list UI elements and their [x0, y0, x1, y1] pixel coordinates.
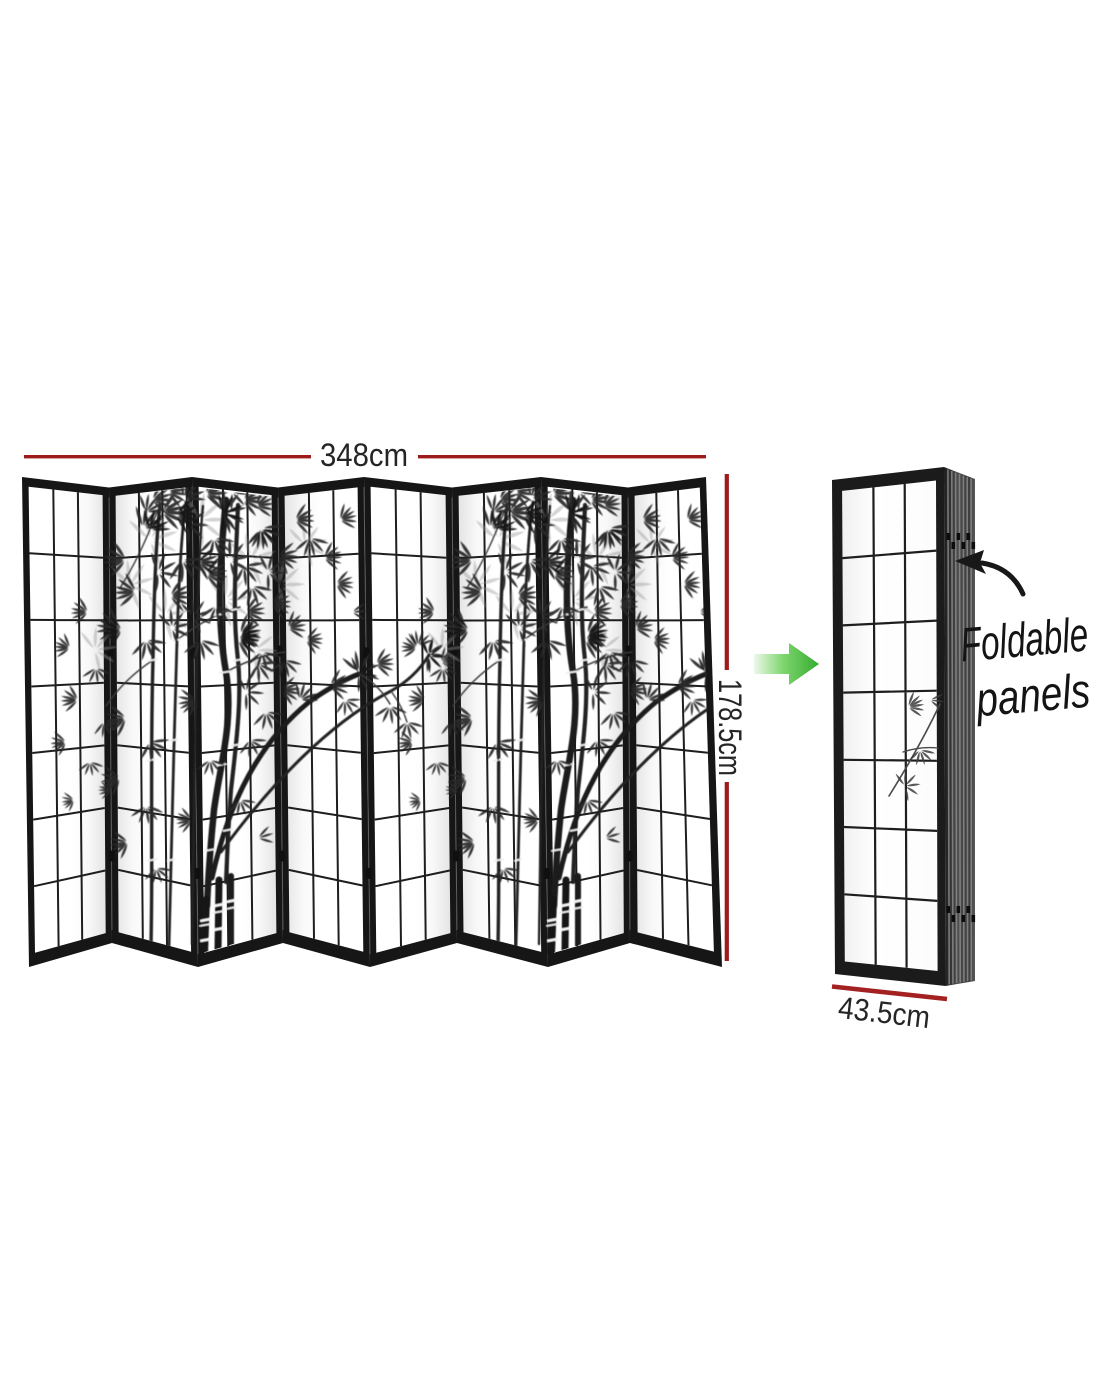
svg-text:panels: panels — [972, 665, 1092, 728]
svg-text:178.5cm: 178.5cm — [712, 679, 748, 776]
svg-text:348cm: 348cm — [320, 437, 408, 473]
svg-text:Foldable: Foldable — [958, 609, 1090, 673]
